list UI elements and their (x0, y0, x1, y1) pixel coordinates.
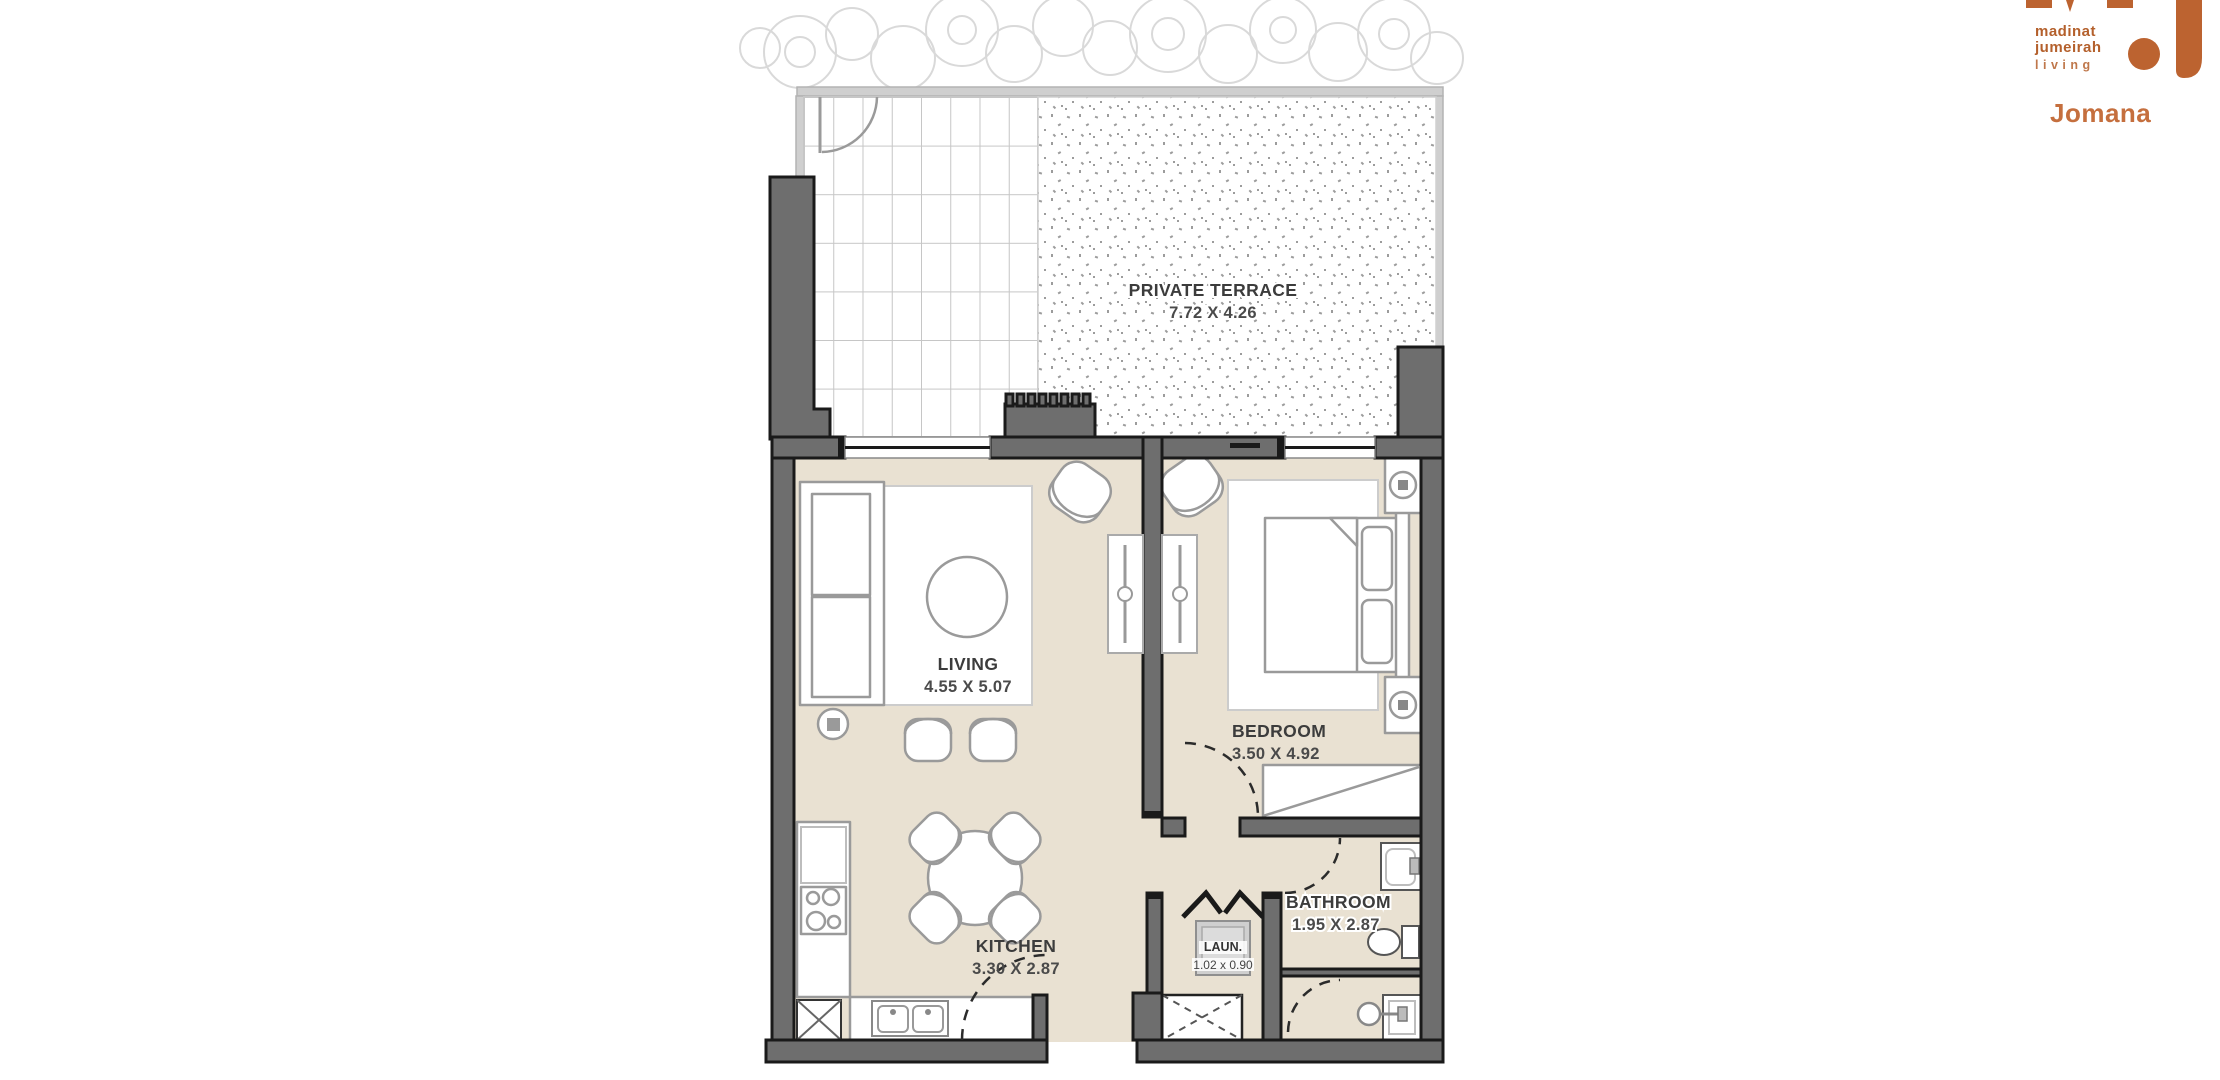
brand-line-living: living (2035, 57, 2102, 73)
bottom-wall (1137, 1040, 1443, 1062)
pouf (970, 719, 1016, 761)
floor-plan: PRIVATE TERRACE 7.72 X 4.26 LIVING 4.55 … (0, 0, 2220, 1080)
terrace-label: PRIVATE TERRACE (1129, 280, 1298, 300)
bottom-wall (766, 1040, 1047, 1062)
entrance-jamb (1133, 993, 1162, 1040)
crenellated-pier (1005, 394, 1095, 437)
living-dims: 4.55 X 5.07 (924, 678, 1012, 696)
showerhead-icon (1358, 1003, 1380, 1025)
shower-partition (1281, 969, 1421, 976)
brand-line-madinat: madinat (2035, 24, 2102, 40)
partition-wall (1143, 437, 1162, 817)
washing-machine (1162, 995, 1242, 1040)
bathroom-label: BATHROOM (1286, 892, 1391, 912)
brand-wordmark: madinat jumeirah living (2035, 24, 2102, 73)
terrace-stipple-paving (1038, 97, 1436, 437)
right-wall (1421, 437, 1443, 1062)
window-vent-mark (1230, 443, 1260, 448)
pillow (1362, 527, 1392, 590)
fridge (801, 827, 846, 883)
entrance-jamb (1033, 995, 1047, 1040)
brand-line-jumeirah: jumeirah (2035, 40, 2102, 56)
kitchen-dims: 3.30 X 2.87 (972, 960, 1060, 978)
nightstand (1385, 457, 1421, 513)
sofa (800, 482, 884, 705)
bedroom-label: BEDROOM (1232, 721, 1326, 741)
headboard (1396, 512, 1409, 678)
left-wall (772, 437, 794, 1062)
kitchen-label: KITCHEN (976, 936, 1057, 956)
cooktop (801, 887, 846, 934)
wardrobe (1263, 765, 1421, 818)
bathroom-sink (1381, 843, 1421, 890)
pillow (1362, 600, 1392, 663)
bathroom-dims: 1.95 X 2.87 (1292, 916, 1380, 934)
bedroom-bottom-wall (1240, 818, 1421, 836)
terrace-right-wall (1398, 347, 1443, 439)
living-label: LIVING (938, 654, 999, 674)
terrace-pergola-grid (804, 97, 1038, 437)
laundry-dims: 1.02 x 0.90 (1193, 958, 1253, 972)
bathroom-wall (1263, 893, 1281, 1040)
terrace-dims: 7.72 X 4.26 (1169, 304, 1257, 322)
trees (740, 0, 1463, 90)
bedroom-dims: 3.50 X 4.92 (1232, 745, 1320, 763)
kitchen-sink (872, 1001, 948, 1036)
project-name: Jomana (2050, 98, 2151, 129)
laundry-label: LAUN. (1204, 940, 1242, 954)
sliding-door-panel (1108, 535, 1143, 653)
floor-lamp (818, 709, 848, 739)
sliding-door-panel (1162, 535, 1197, 653)
bed (1265, 512, 1409, 678)
nightstand (1385, 677, 1421, 733)
coffee-table (927, 557, 1007, 637)
pouf (905, 719, 951, 761)
dishwasher (797, 1000, 841, 1040)
